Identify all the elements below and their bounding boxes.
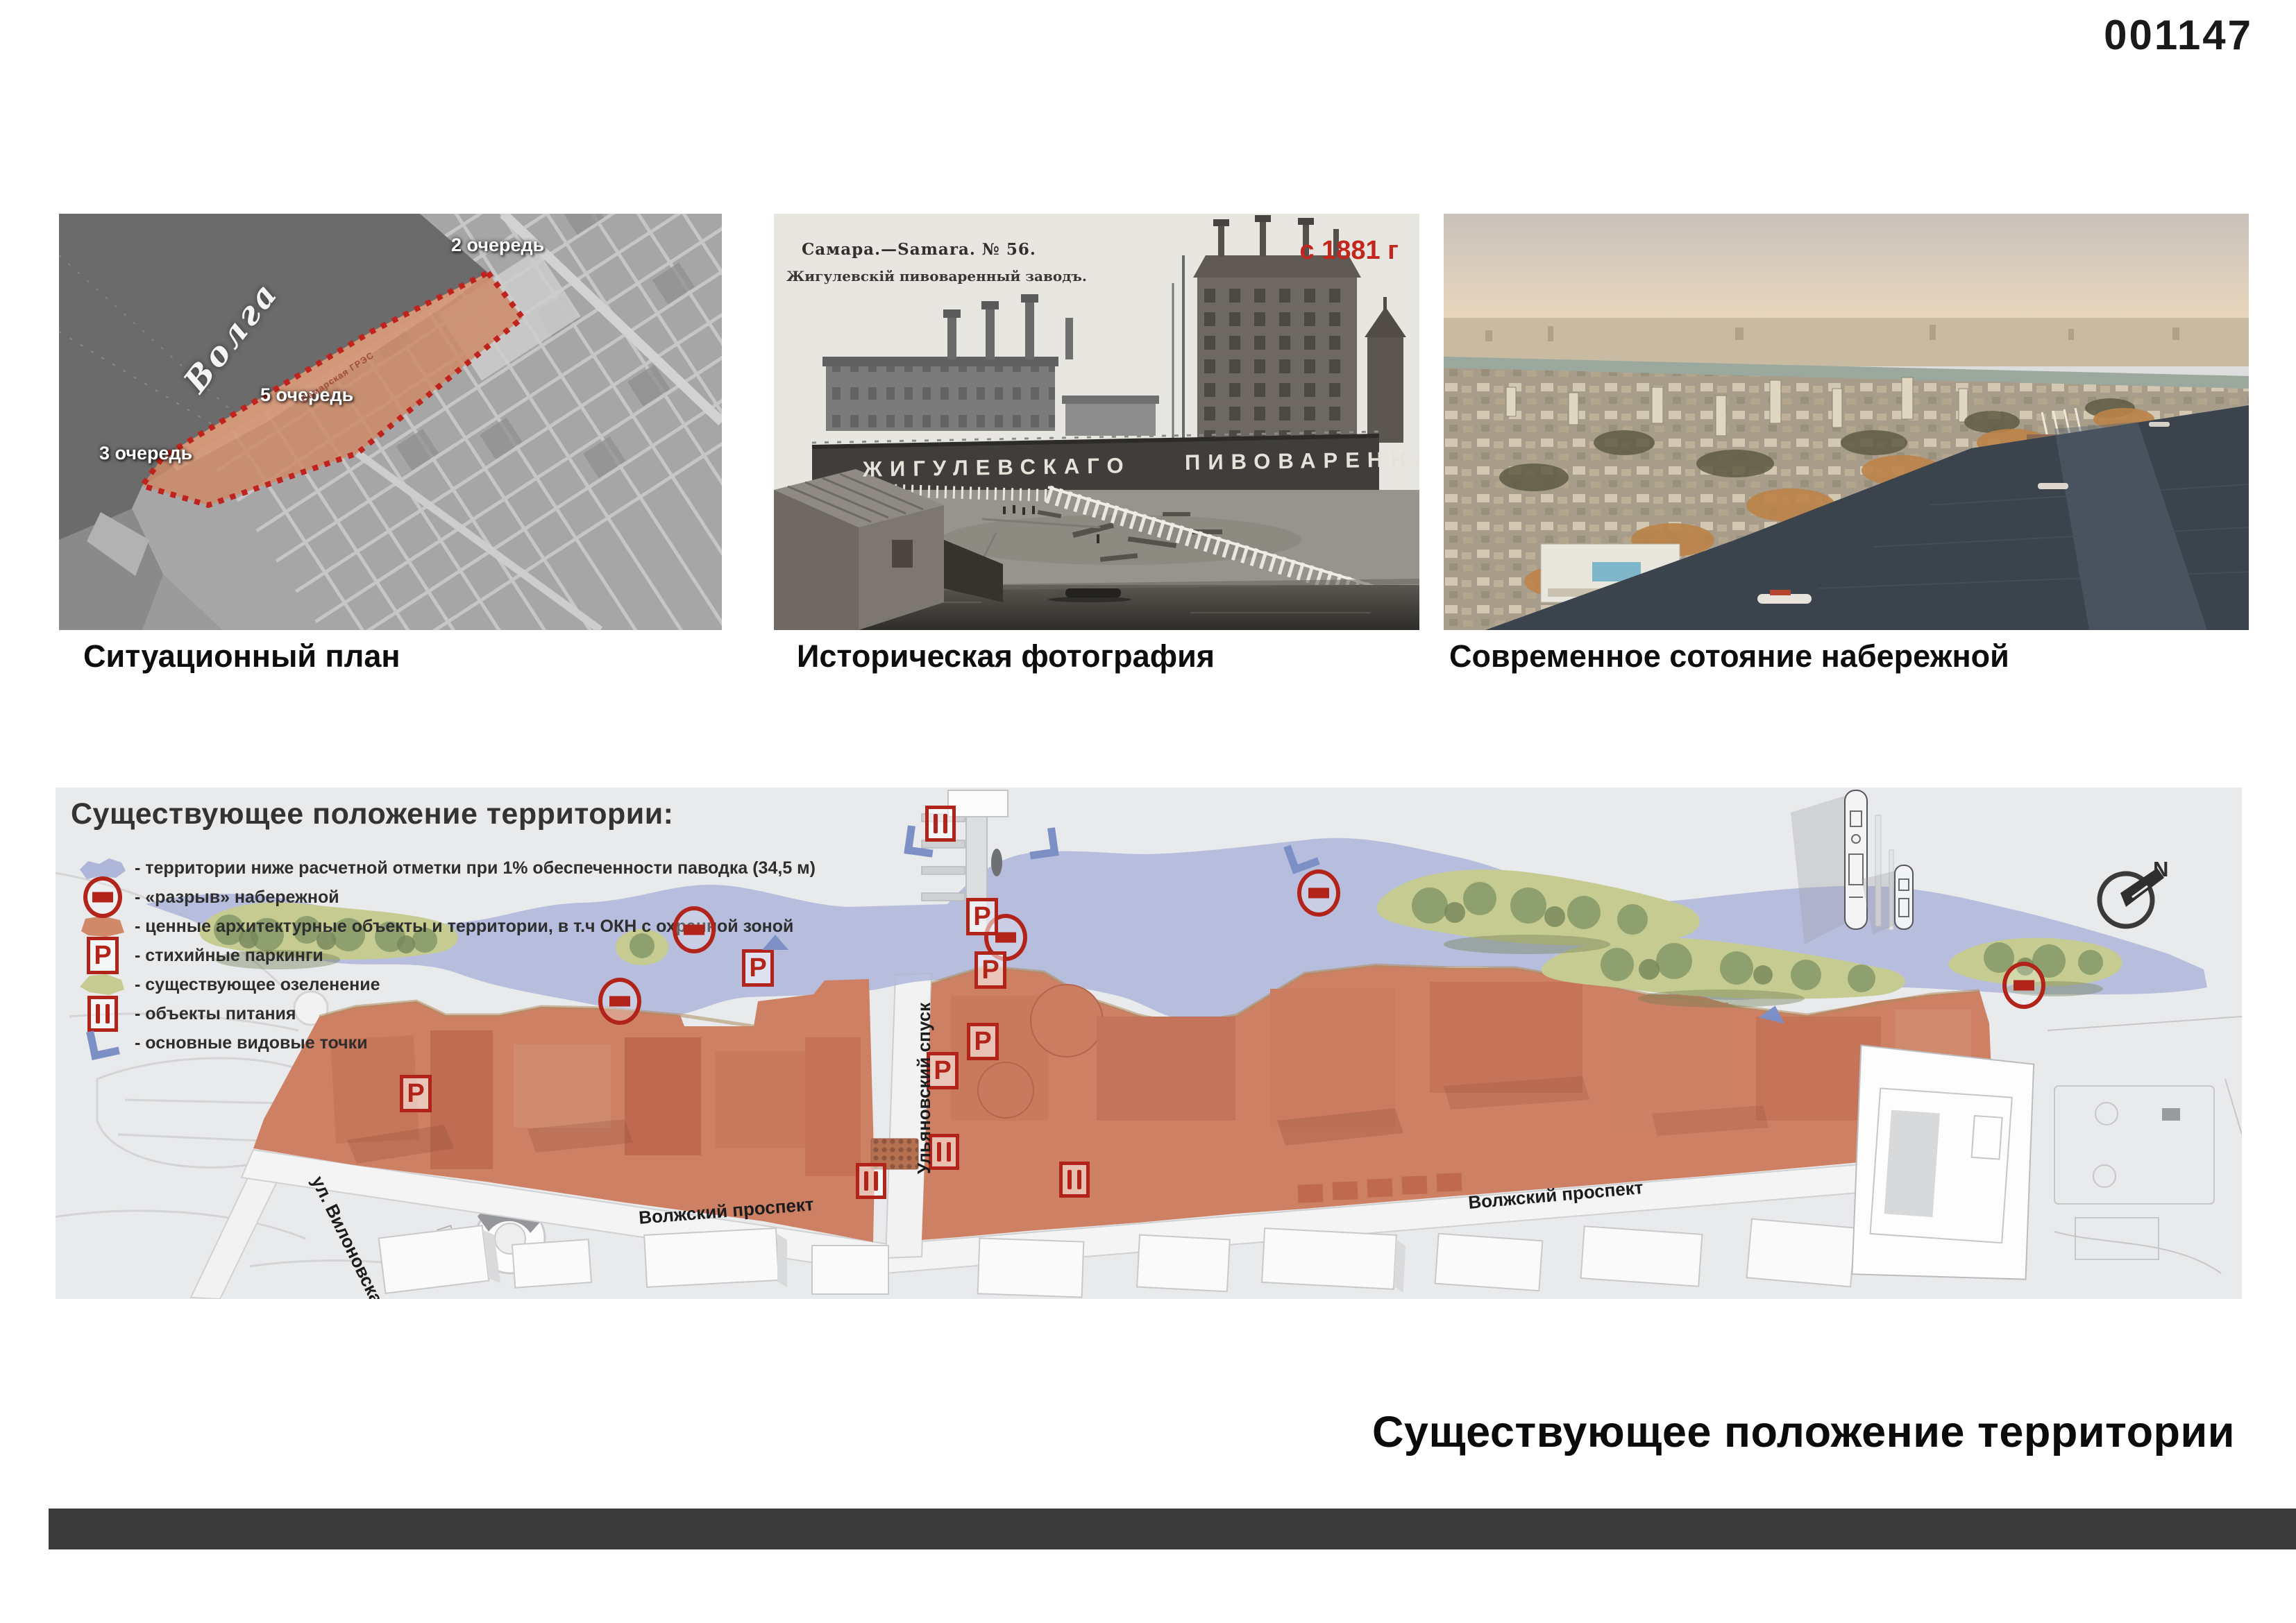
parking-icon: P	[87, 937, 119, 974]
no-entry-icon	[1297, 869, 1340, 917]
master-plan-panel: Существующее положение территории: - тер…	[56, 788, 2242, 1299]
street-label-ulyanovsky: Ульяновский спуск	[913, 1003, 935, 1174]
legend-item-food: - объекты питания	[71, 999, 987, 1028]
situational-plan-art	[59, 214, 722, 630]
compass-north-label: N	[2153, 857, 2168, 882]
viewpoint-icon	[1027, 827, 1058, 859]
food-icon	[1059, 1162, 1090, 1198]
modern-photo-art	[1444, 214, 2249, 630]
postcard-subtitle: Жигулевскій пивоваренный заводъ.	[786, 268, 1087, 284]
parking-icon: P	[967, 1023, 999, 1060]
east-linework	[1845, 1017, 2242, 1286]
legend-item-flood: - территории ниже расчетной отметки при …	[71, 853, 987, 883]
entry-number: 001147	[2104, 11, 2253, 59]
wall-text-right: ПИВОВАРЕННАГО	[1185, 446, 1419, 475]
legend-item-heritage: - ценные архитектурные объекты и террито…	[71, 912, 987, 941]
legend-item-greenery: - существующее озеленение	[71, 970, 987, 999]
legend-title: Существующее положение территории:	[71, 797, 987, 831]
no-entry-icon	[83, 876, 122, 918]
legend-item-parking: P - стихийные паркинги	[71, 941, 987, 970]
no-entry-icon	[673, 906, 716, 953]
parking-icon: P	[400, 1075, 432, 1112]
ships	[1791, 790, 1913, 944]
caption-historic-photo: Историческая фотография	[797, 638, 1215, 674]
caption-situational-plan: Ситуационный план	[83, 638, 400, 674]
no-entry-icon	[598, 978, 641, 1025]
legend-item-viewpoints: - основные видовые точки	[71, 1028, 987, 1057]
footer-bar	[49, 1509, 2296, 1549]
viewpoint-icon	[762, 935, 788, 950]
legend-item-gap: - «разрыв» набережной	[71, 883, 987, 912]
parking-icon: P	[974, 951, 1006, 989]
postcard-number: Самара.—Samara. № 56.	[802, 240, 1036, 259]
greenery-swatch-icon	[78, 971, 127, 998]
modern-photo-figure	[1444, 214, 2249, 630]
map-legend: Существующее положение территории: - тер…	[71, 797, 987, 1057]
wall-text-left: ЖИГУЛЕВСКАГО	[863, 453, 1131, 482]
historic-photo-figure: Самара.—Samara. № 56. Жигулевскій пивова…	[774, 214, 1419, 630]
bottom-title: Существующее положение территории	[1372, 1407, 2235, 1457]
food-icon	[856, 1163, 886, 1199]
parking-icon: P	[742, 949, 774, 987]
presentation-board: 001147	[0, 0, 2296, 1623]
parking-icon: P	[966, 898, 998, 935]
stage2-label: 2 очередь	[451, 235, 544, 256]
situational-plan-figure: Волга 2 очередь 5 очередь 3 очередь Сама…	[59, 214, 722, 630]
no-entry-icon	[2002, 962, 2045, 1009]
viewpoint-icon	[86, 1026, 120, 1060]
stage3-label: 3 очередь	[99, 443, 192, 464]
viewpoint-icon	[904, 825, 936, 857]
postcard-year-label: с 1881 г	[1299, 236, 1399, 266]
caption-modern-photo: Современное сотояние набережной	[1449, 638, 2009, 674]
